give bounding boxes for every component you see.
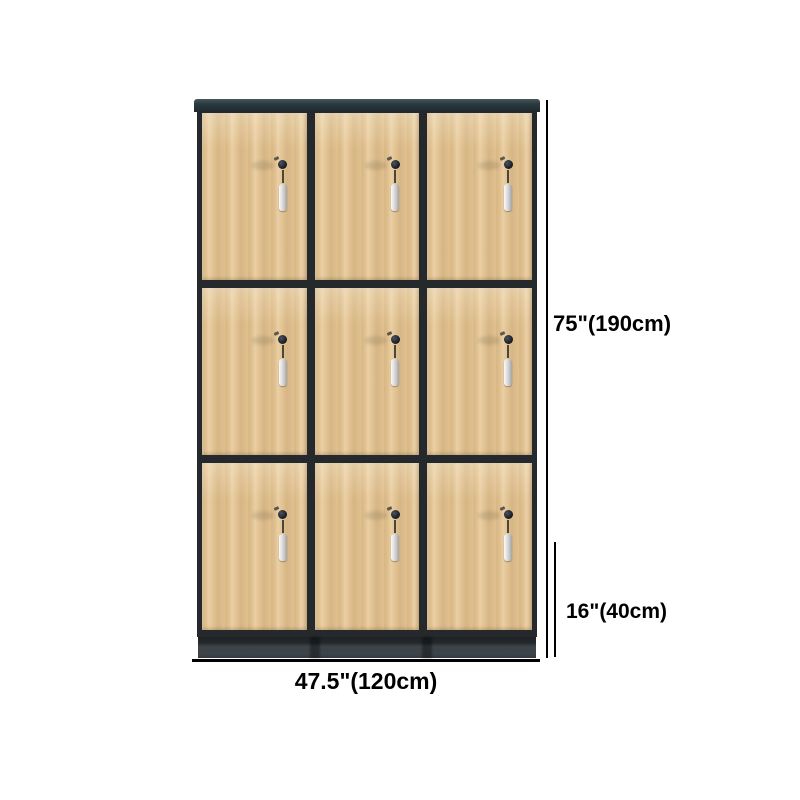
key-chain xyxy=(394,345,396,358)
locker-door xyxy=(202,463,307,630)
key-shadow xyxy=(478,161,500,170)
width-dimension-label: 47.5"(120cm) xyxy=(192,668,540,695)
door-lock-icon xyxy=(278,160,287,169)
cabinet-base xyxy=(198,637,536,658)
key-chain xyxy=(282,520,284,533)
door-lock-icon xyxy=(278,510,287,519)
product-dimension-diagram: 75"(190cm) 16"(40cm) 47.5"(120cm) xyxy=(0,0,800,800)
key-chain xyxy=(394,520,396,533)
lock-and-key xyxy=(276,335,290,386)
key-chain xyxy=(507,520,509,533)
base-height-dimension-label: 16"(40cm) xyxy=(566,600,667,624)
lock-and-key xyxy=(502,510,516,561)
key-shadow xyxy=(252,511,274,520)
locker-door xyxy=(427,288,532,455)
key-shadow xyxy=(365,336,387,345)
key-chain xyxy=(507,170,509,183)
base-divider-shadow xyxy=(422,637,432,658)
door-lock-icon xyxy=(504,510,513,519)
locker-door xyxy=(202,288,307,455)
key-shadow xyxy=(252,336,274,345)
lock-and-key xyxy=(502,160,516,211)
locker-door xyxy=(427,113,532,280)
key-shadow xyxy=(478,336,500,345)
key-tag xyxy=(391,534,399,561)
door-lock-icon xyxy=(504,335,513,344)
height-dimension-line xyxy=(546,100,548,658)
height-dimension-label: 75"(190cm) xyxy=(553,311,671,337)
key-shadow xyxy=(365,511,387,520)
key-tag xyxy=(279,184,287,211)
lock-and-key xyxy=(276,160,290,211)
locker-door xyxy=(315,288,420,455)
width-dimension-line xyxy=(192,659,540,662)
key-shadow xyxy=(252,161,274,170)
locker-door xyxy=(427,463,532,630)
locker-door xyxy=(315,463,420,630)
key-chain xyxy=(507,345,509,358)
key-tag xyxy=(391,359,399,386)
door-lock-icon xyxy=(504,160,513,169)
lock-and-key xyxy=(389,510,403,561)
key-shadow xyxy=(478,511,500,520)
lock-and-key xyxy=(502,335,516,386)
key-tag xyxy=(279,534,287,561)
key-chain xyxy=(282,170,284,183)
locker-door xyxy=(315,113,420,280)
key-chain xyxy=(282,345,284,358)
key-tag xyxy=(504,359,512,386)
door-lock-icon xyxy=(278,335,287,344)
key-chain xyxy=(394,170,396,183)
door-lock-icon xyxy=(391,335,400,344)
locker-cabinet xyxy=(194,99,540,658)
base-divider-shadow xyxy=(310,637,320,658)
locker-door xyxy=(202,113,307,280)
base-height-dimension-line xyxy=(554,542,556,657)
door-grid xyxy=(197,111,537,637)
key-shadow xyxy=(365,161,387,170)
key-tag xyxy=(391,184,399,211)
key-tag xyxy=(279,359,287,386)
door-lock-icon xyxy=(391,510,400,519)
lock-and-key xyxy=(276,510,290,561)
lock-and-key xyxy=(389,335,403,386)
key-tag xyxy=(504,184,512,211)
lock-and-key xyxy=(389,160,403,211)
door-lock-icon xyxy=(391,160,400,169)
key-tag xyxy=(504,534,512,561)
